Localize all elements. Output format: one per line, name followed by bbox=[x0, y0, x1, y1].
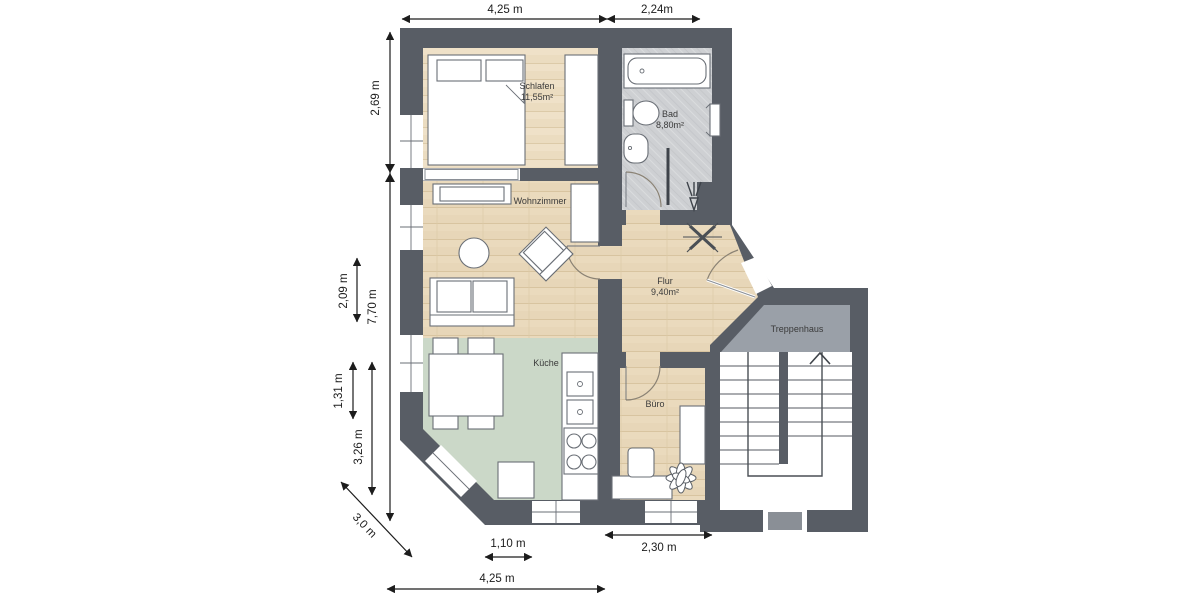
stove bbox=[564, 428, 598, 474]
dim-bottom-main: 4,25 m bbox=[479, 573, 514, 585]
desk bbox=[612, 476, 672, 499]
sofa bbox=[430, 278, 514, 326]
oven bbox=[567, 372, 593, 396]
kitchen-island bbox=[498, 462, 534, 498]
stair-divider-wall bbox=[779, 352, 788, 464]
flur-label: Flur bbox=[657, 276, 673, 286]
wardrobe-buero bbox=[680, 406, 705, 464]
sideboard bbox=[433, 184, 511, 204]
wardrobe-schlafen bbox=[565, 55, 598, 165]
bathtub bbox=[624, 54, 710, 88]
dim-left-living: 2,09 m bbox=[338, 273, 350, 308]
dim-diagonal: 3,0 m bbox=[350, 511, 379, 540]
dim-tick-lower bbox=[385, 173, 395, 182]
dim-tick-upper bbox=[385, 164, 395, 173]
floor-plan-page: Schlafen 11,55m² Bad 8,80m² Wohnzimmer F… bbox=[0, 0, 1200, 600]
window-bottom-kueche bbox=[532, 501, 580, 523]
desk-chair bbox=[628, 448, 654, 477]
toilet bbox=[624, 100, 659, 126]
pillow bbox=[486, 60, 523, 81]
dim-left-upper: 2,69 m bbox=[370, 80, 382, 115]
wohnzimmer-doorway bbox=[598, 246, 622, 279]
bad-label: Bad bbox=[662, 109, 678, 119]
dim-top-main: 4,25 m bbox=[487, 4, 522, 16]
dim-bottom-window: 1,10 m bbox=[490, 538, 525, 550]
window-wohnzimmer bbox=[400, 205, 423, 250]
window-bottom-buero bbox=[645, 501, 697, 523]
dim-left-kitchen: 3,26 m bbox=[353, 429, 365, 464]
oven bbox=[567, 400, 593, 424]
bed bbox=[428, 55, 525, 165]
round-table bbox=[459, 238, 489, 268]
sink bbox=[624, 134, 648, 163]
dim-top-bath: 2,24m bbox=[641, 4, 673, 16]
kitchen-counter bbox=[562, 353, 598, 500]
treppenhaus-label: Treppenhaus bbox=[771, 324, 824, 334]
kueche-label: Küche bbox=[533, 358, 559, 368]
schlafen-label: Schlafen bbox=[519, 81, 554, 91]
dim-left-kitchen-window: 1,31 m bbox=[333, 373, 345, 408]
flur-area: 9,40m² bbox=[651, 287, 679, 297]
floor-plan-drawing: Schlafen 11,55m² Bad 8,80m² Wohnzimmer F… bbox=[0, 0, 1200, 600]
entrance-door-slab bbox=[768, 512, 802, 530]
pillow bbox=[437, 60, 481, 81]
dim-bottom-office: 2,30 m bbox=[641, 542, 676, 554]
cabinet-wohnzimmer bbox=[571, 184, 599, 242]
schlafen-area: 11,55m² bbox=[521, 92, 553, 102]
buero-label: Büro bbox=[645, 399, 664, 409]
window-kueche bbox=[400, 335, 423, 392]
bad-area: 8,80m² bbox=[656, 120, 684, 130]
bad-doorway bbox=[626, 210, 660, 225]
window-schlafen bbox=[400, 115, 423, 168]
wohnzimmer-label: Wohnzimmer bbox=[514, 196, 567, 206]
dining-table bbox=[429, 354, 503, 416]
plant bbox=[666, 463, 696, 493]
schlafen-door-leaf bbox=[425, 170, 518, 180]
dim-left-total: 7,70 m bbox=[367, 289, 379, 324]
buero-doorway bbox=[626, 352, 660, 368]
